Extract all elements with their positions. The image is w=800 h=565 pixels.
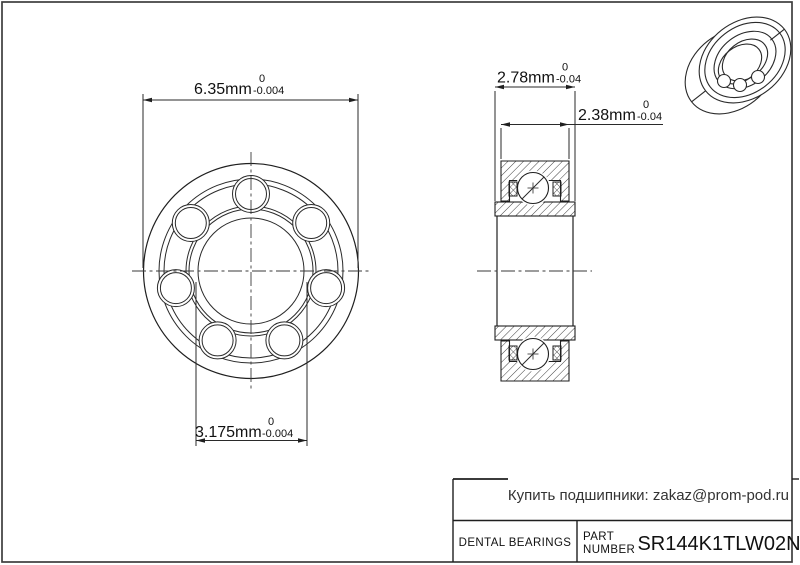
bearing-front-view: [132, 152, 370, 392]
dim-inner-width-value: 2.78mm: [497, 70, 555, 87]
vendor-contact-text: Купить подшипники: zakaz@prom-pod.ru: [508, 487, 789, 504]
arrowhead-left: [501, 122, 510, 127]
part-label-line1: PART: [583, 531, 614, 543]
dim-outer-tol-lower: -0.004: [253, 85, 284, 97]
3d-ball: [718, 75, 731, 88]
arrowhead-left: [143, 98, 152, 103]
drawing-page: 6.35mm 0 -0.004 3.175mm 0 -0.004: [0, 0, 800, 565]
title-block: Купить подшипники: zakaz@prom-pod.ru DEN…: [453, 479, 800, 562]
dim-inner-width-tol-lower: -0.04: [556, 74, 581, 86]
3d-ball: [734, 79, 747, 92]
dimension-outer-ring-width: 2.38mm 0 -0.04: [501, 99, 663, 159]
dim-bore-value: 3.175mm: [195, 424, 262, 441]
dim-outer-width-value: 2.38mm: [578, 107, 636, 124]
dim-bore-tol-lower: -0.004: [262, 428, 293, 440]
dim-outer-tol-upper: 0: [259, 73, 265, 85]
shield-top-right: [553, 182, 561, 196]
arrowhead-right: [298, 438, 307, 443]
dimension-outer-diameter: 6.35mm 0 -0.004: [143, 73, 358, 268]
dim-outer-width-tol-lower: -0.04: [637, 111, 662, 123]
dim-bore-tol-upper: 0: [268, 416, 274, 428]
shield-top-left: [509, 182, 517, 196]
dim-inner-width-tol-upper: 0: [562, 62, 568, 74]
page-frame: [2, 2, 792, 562]
3d-ball: [752, 71, 765, 84]
dim-outer-value: 6.35mm: [194, 81, 252, 98]
part-label-line2: NUMBER: [583, 544, 635, 556]
part-number-value: SR144K1TLW02N: [637, 533, 800, 555]
category-label: DENTAL BEARINGS: [459, 537, 572, 549]
drawing-canvas: 6.35mm 0 -0.004 3.175mm 0 -0.004: [0, 0, 800, 565]
shield-bottom-left: [509, 346, 517, 360]
arrowhead-right: [349, 98, 358, 103]
dim-outer-width-tol-upper: 0: [643, 99, 649, 111]
shield-bottom-right: [553, 346, 561, 360]
bearing-3d-view: [668, 0, 800, 132]
arrowhead-right: [560, 122, 569, 127]
